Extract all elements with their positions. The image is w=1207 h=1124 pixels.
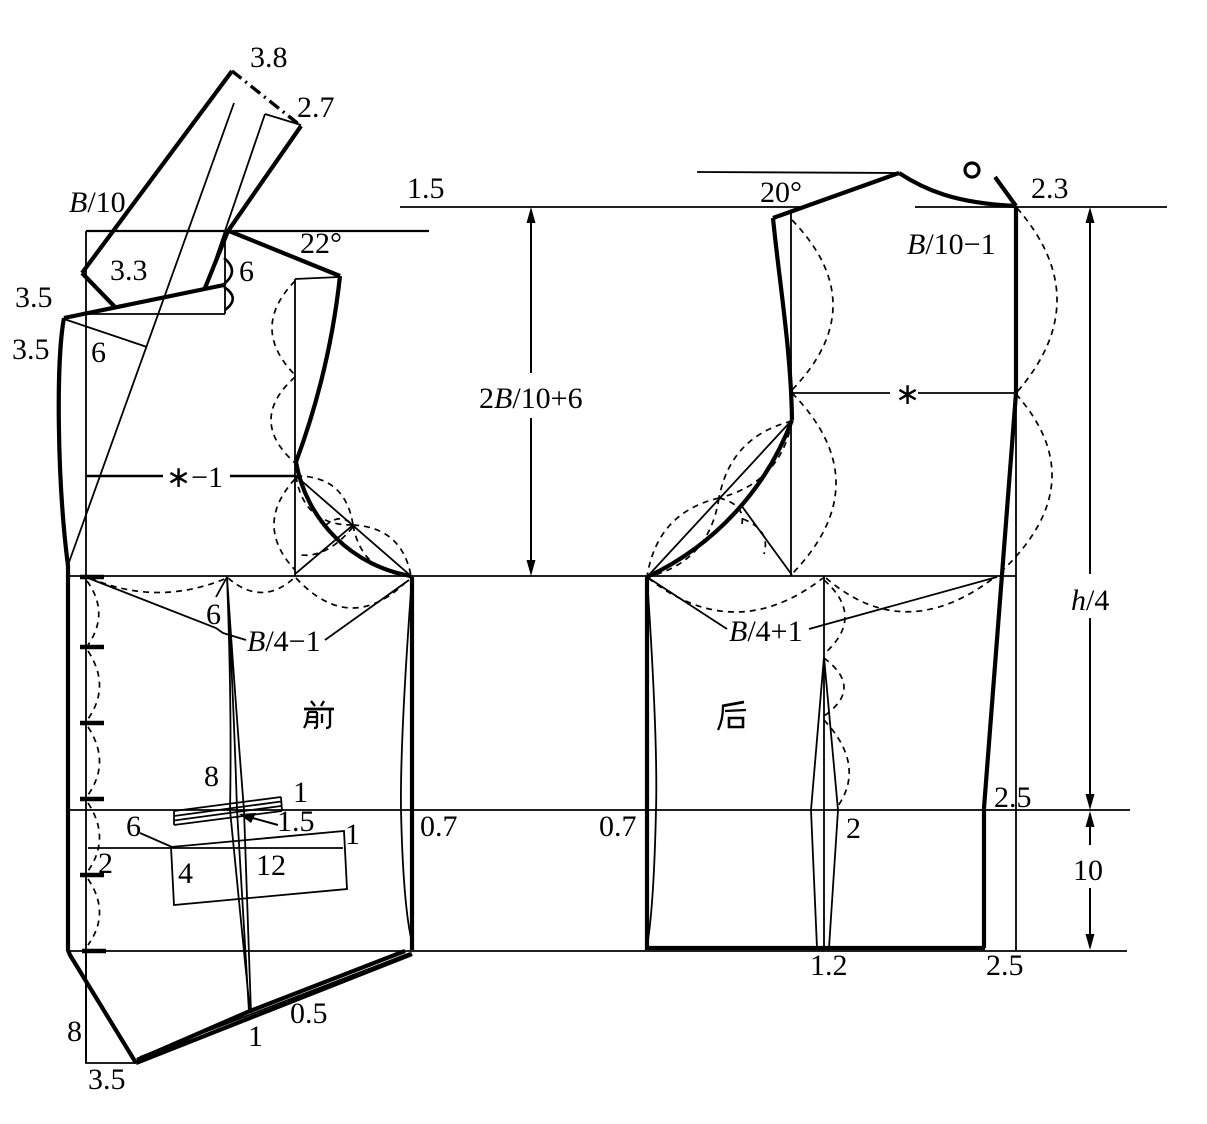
- svg-text:B/4−1: B/4−1: [247, 625, 321, 658]
- svg-text:3.3: 3.3: [110, 254, 148, 287]
- svg-text:10: 10: [1073, 854, 1103, 887]
- svg-text:1.2: 1.2: [810, 949, 848, 982]
- svg-text:3.5: 3.5: [15, 281, 53, 314]
- svg-text:∗−1: ∗−1: [166, 461, 223, 494]
- svg-text:1: 1: [345, 818, 360, 851]
- svg-text:2.7: 2.7: [297, 91, 335, 124]
- svg-text:0.7: 0.7: [420, 810, 458, 843]
- svg-text:2: 2: [846, 812, 861, 845]
- svg-text:8: 8: [67, 1015, 82, 1048]
- svg-text:6: 6: [206, 598, 221, 631]
- svg-text:22°: 22°: [300, 227, 342, 260]
- svg-text:2.5: 2.5: [994, 781, 1032, 814]
- svg-text:8: 8: [204, 760, 219, 793]
- svg-text:12: 12: [256, 849, 286, 882]
- svg-text:B/10: B/10: [69, 186, 126, 219]
- svg-text:4: 4: [178, 857, 193, 890]
- svg-text:2: 2: [98, 847, 113, 880]
- svg-text:6: 6: [126, 810, 141, 843]
- svg-text:0.7: 0.7: [599, 810, 637, 843]
- svg-text:6: 6: [91, 336, 106, 369]
- svg-text:0.5: 0.5: [290, 997, 328, 1030]
- svg-text:B/10−1: B/10−1: [907, 228, 996, 261]
- svg-text:6: 6: [239, 255, 254, 288]
- svg-text:1.5: 1.5: [277, 805, 315, 838]
- svg-text:1: 1: [248, 1020, 263, 1053]
- svg-text:1.5: 1.5: [407, 172, 445, 205]
- svg-text:3.8: 3.8: [250, 41, 288, 74]
- svg-text:2.3: 2.3: [1031, 172, 1069, 205]
- svg-text:h/4: h/4: [1071, 584, 1109, 617]
- svg-text:2B/10+6: 2B/10+6: [479, 382, 583, 415]
- svg-text:3.5: 3.5: [88, 1063, 126, 1096]
- svg-text:∗: ∗: [895, 378, 920, 411]
- svg-text:3.5: 3.5: [12, 333, 50, 366]
- svg-text:B/4+1: B/4+1: [729, 615, 803, 648]
- svg-text:2.5: 2.5: [986, 949, 1024, 982]
- svg-text:20°: 20°: [760, 176, 802, 209]
